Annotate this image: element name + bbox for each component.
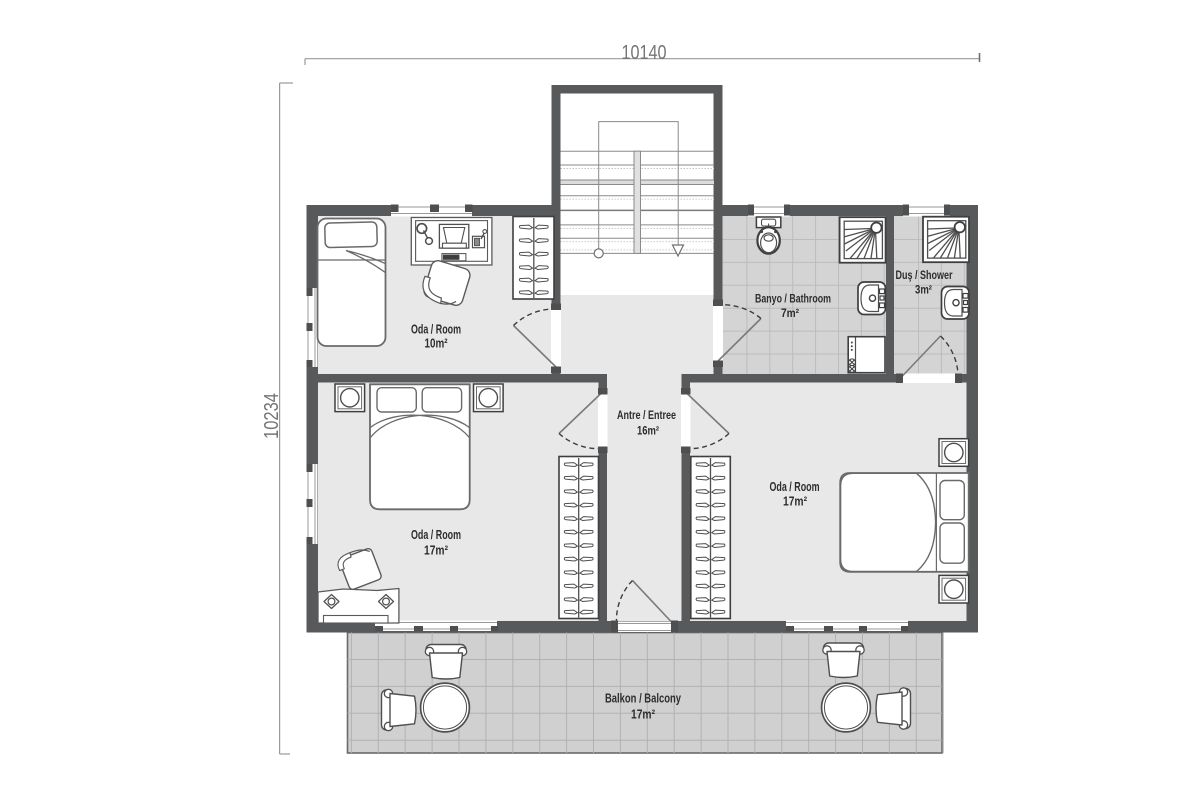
svg-text:Duş / Shower: Duş / Shower [896, 268, 953, 282]
svg-text:17m²: 17m² [424, 544, 448, 558]
svg-text:10140: 10140 [622, 41, 667, 64]
svg-text:Banyo / Bathroom: Banyo / Bathroom [755, 292, 831, 306]
svg-text:Oda / Room: Oda / Room [411, 323, 461, 337]
svg-text:16m²: 16m² [637, 424, 659, 438]
svg-text:Oda / Room: Oda / Room [411, 528, 461, 542]
svg-text:17m²: 17m² [631, 708, 655, 722]
svg-text:Balkon / Balcony: Balkon / Balcony [605, 692, 681, 706]
svg-text:Oda / Room: Oda / Room [770, 480, 820, 494]
svg-text:10234: 10234 [260, 393, 283, 439]
svg-text:10m²: 10m² [425, 337, 448, 351]
svg-text:Antre / Entree: Antre / Entree [617, 408, 676, 422]
svg-text:7m²: 7m² [781, 306, 799, 320]
svg-text:17m²: 17m² [783, 495, 807, 509]
svg-text:3m²: 3m² [915, 283, 932, 297]
